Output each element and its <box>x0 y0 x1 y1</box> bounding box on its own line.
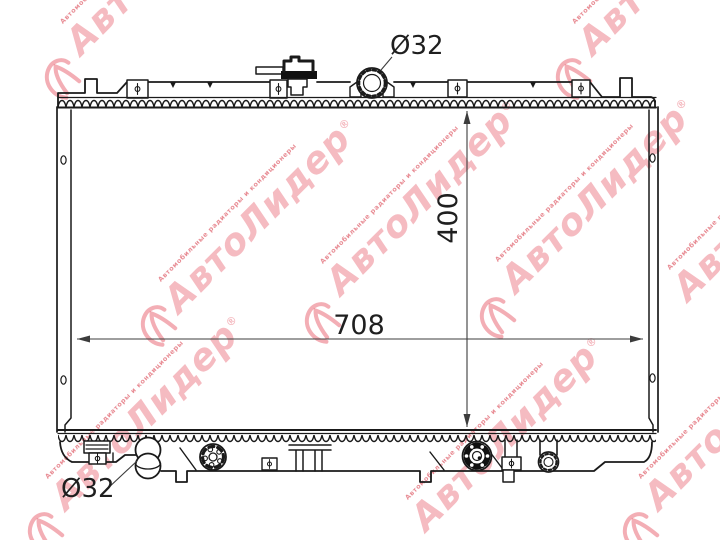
radiator-diagram-svg: 708 400 Ø32 Ø32 <box>0 0 720 540</box>
height-dimension: 400 <box>433 111 471 427</box>
hanging-bracket <box>502 440 521 482</box>
bolted-flange-right <box>463 442 492 471</box>
outlet-diameter-callout: Ø32 <box>61 461 137 504</box>
bolted-flange-left <box>200 444 226 470</box>
radiator-technical-drawing: Автомобильные радиаторы и кондиционерыАв… <box>0 0 720 540</box>
inlet-diameter-callout: Ø32 <box>381 31 444 70</box>
drain-plug-assembly <box>84 441 113 464</box>
small-bracket <box>262 458 277 470</box>
top-crimp-seam <box>58 98 656 108</box>
height-dimension-label: 400 <box>433 192 464 244</box>
width-dimension-label: 708 <box>333 310 385 341</box>
bottom-small-pipe <box>539 440 559 472</box>
inlet-pipe-top <box>350 68 394 98</box>
inlet-diameter-label: Ø32 <box>390 31 444 61</box>
radiator-outline <box>57 57 658 482</box>
right-side-channel <box>649 107 658 432</box>
outlet-diameter-label: Ø32 <box>61 474 115 504</box>
left-side-channel <box>57 107 71 432</box>
u-bracket <box>289 445 331 471</box>
width-dimension: 708 <box>77 310 643 343</box>
tank-creases <box>180 448 502 470</box>
outlet-pipe-bottom <box>136 438 161 479</box>
